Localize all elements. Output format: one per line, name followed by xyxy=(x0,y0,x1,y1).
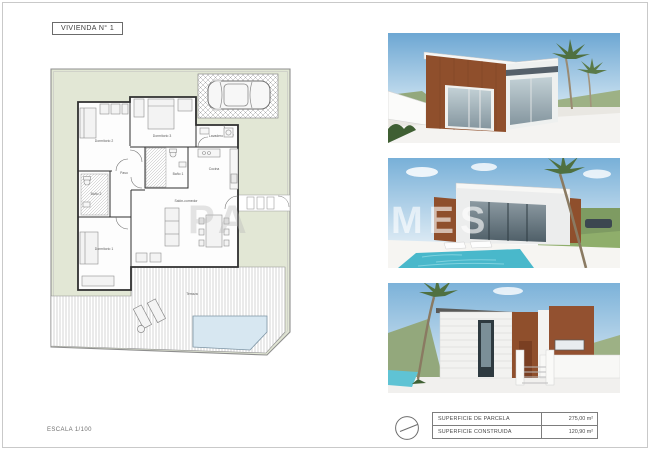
parcel-surface-label: SUPERFICIE DE PARCELA xyxy=(433,416,541,422)
car-topview-icon xyxy=(208,80,270,111)
render-1-svg xyxy=(388,33,620,143)
table-row: SUPERFICIE DE PARCELA 275,00 m² xyxy=(433,413,597,425)
built-surface-label: SUPERFICIE CONSTRUIDA xyxy=(433,429,541,435)
parcel-surface-value: 275,00 m² xyxy=(541,413,597,425)
floor-plan: Dormitorio 2 Dormitorio 3 Lavadero Cocin… xyxy=(38,50,363,395)
built-surface-value: 120,90 m² xyxy=(541,426,597,438)
room-label-salon: Salón-comedor xyxy=(175,199,199,203)
room-label-paso: Paso xyxy=(120,171,128,175)
room-label-lavadero: Lavadero xyxy=(209,134,223,138)
bathroom1-floor xyxy=(146,148,166,187)
drawing-sheet: VIVIENDA N° 1 xyxy=(0,0,650,450)
parking-area xyxy=(198,74,278,118)
car-side xyxy=(585,219,612,228)
house-volume xyxy=(424,52,558,132)
north-arrow-icon xyxy=(394,415,420,441)
page-title: VIVIENDA N° 1 xyxy=(52,22,123,35)
room-label-terraza: Terraza xyxy=(186,292,197,296)
house-volume xyxy=(434,183,581,245)
wood-volume xyxy=(434,197,456,242)
house-footprint xyxy=(78,97,238,290)
room-label-dormitorio2: Dormitorio 2 xyxy=(95,139,114,143)
table-row: SUPERFICIE CONSTRUIDA 120,90 m² xyxy=(433,425,597,438)
render-exterior-side xyxy=(388,33,620,143)
entrance-path xyxy=(238,195,290,211)
render-3-svg xyxy=(388,283,620,393)
room-label-dormitorio3: Dormitorio 3 xyxy=(153,134,172,138)
room-label-bano1: Baño 1 xyxy=(173,172,184,176)
render-exterior-pool xyxy=(388,158,620,268)
slot-window xyxy=(555,340,584,350)
floor-plan-svg: Dormitorio 2 Dormitorio 3 Lavadero Cocin… xyxy=(38,50,363,395)
scale-label: ESCALA 1/100 xyxy=(47,427,92,433)
room-label-dormitorio1: Dormitorio 1 xyxy=(95,247,114,251)
render-2-svg xyxy=(388,158,620,268)
room-label-bano2: Baño 2 xyxy=(91,192,102,196)
render-exterior-front xyxy=(388,283,620,393)
room-label-cocina: Cocina xyxy=(209,167,220,171)
street xyxy=(388,377,620,393)
surface-summary-table: SUPERFICIE DE PARCELA 275,00 m² SUPERFIC… xyxy=(432,412,598,439)
